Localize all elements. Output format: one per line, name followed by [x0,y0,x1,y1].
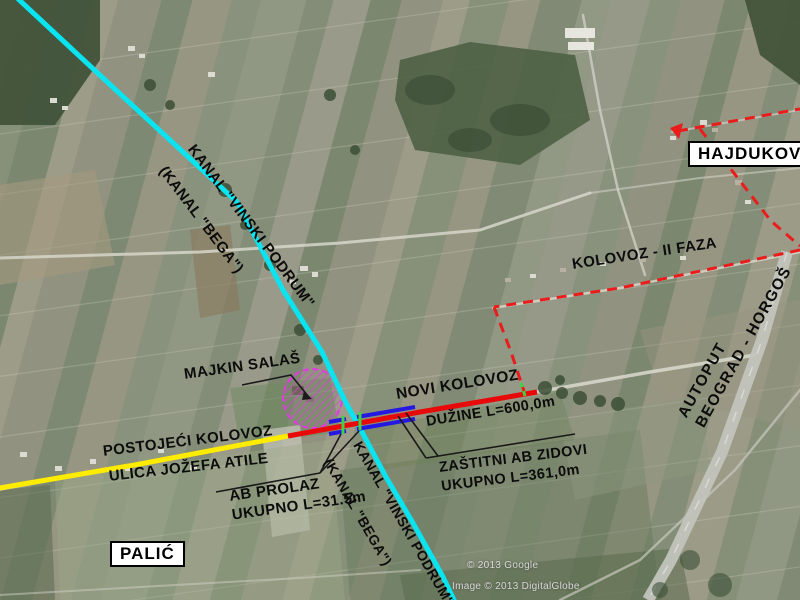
map-screenshot: KANAL "VINSKI PODRUM" (KANAL "BEGA") KAN… [0,0,800,600]
majkin-leader-line [242,375,308,396]
google-credit: © 2013 Google [467,560,538,571]
digitalglobe-credit: Image © 2013 DigitalGlobe [452,581,580,592]
majkin-leader-arrowhead [302,391,312,400]
hajdukovo-label: HAJDUKOVO [688,141,800,167]
palic-label: PALIĆ [110,541,185,567]
